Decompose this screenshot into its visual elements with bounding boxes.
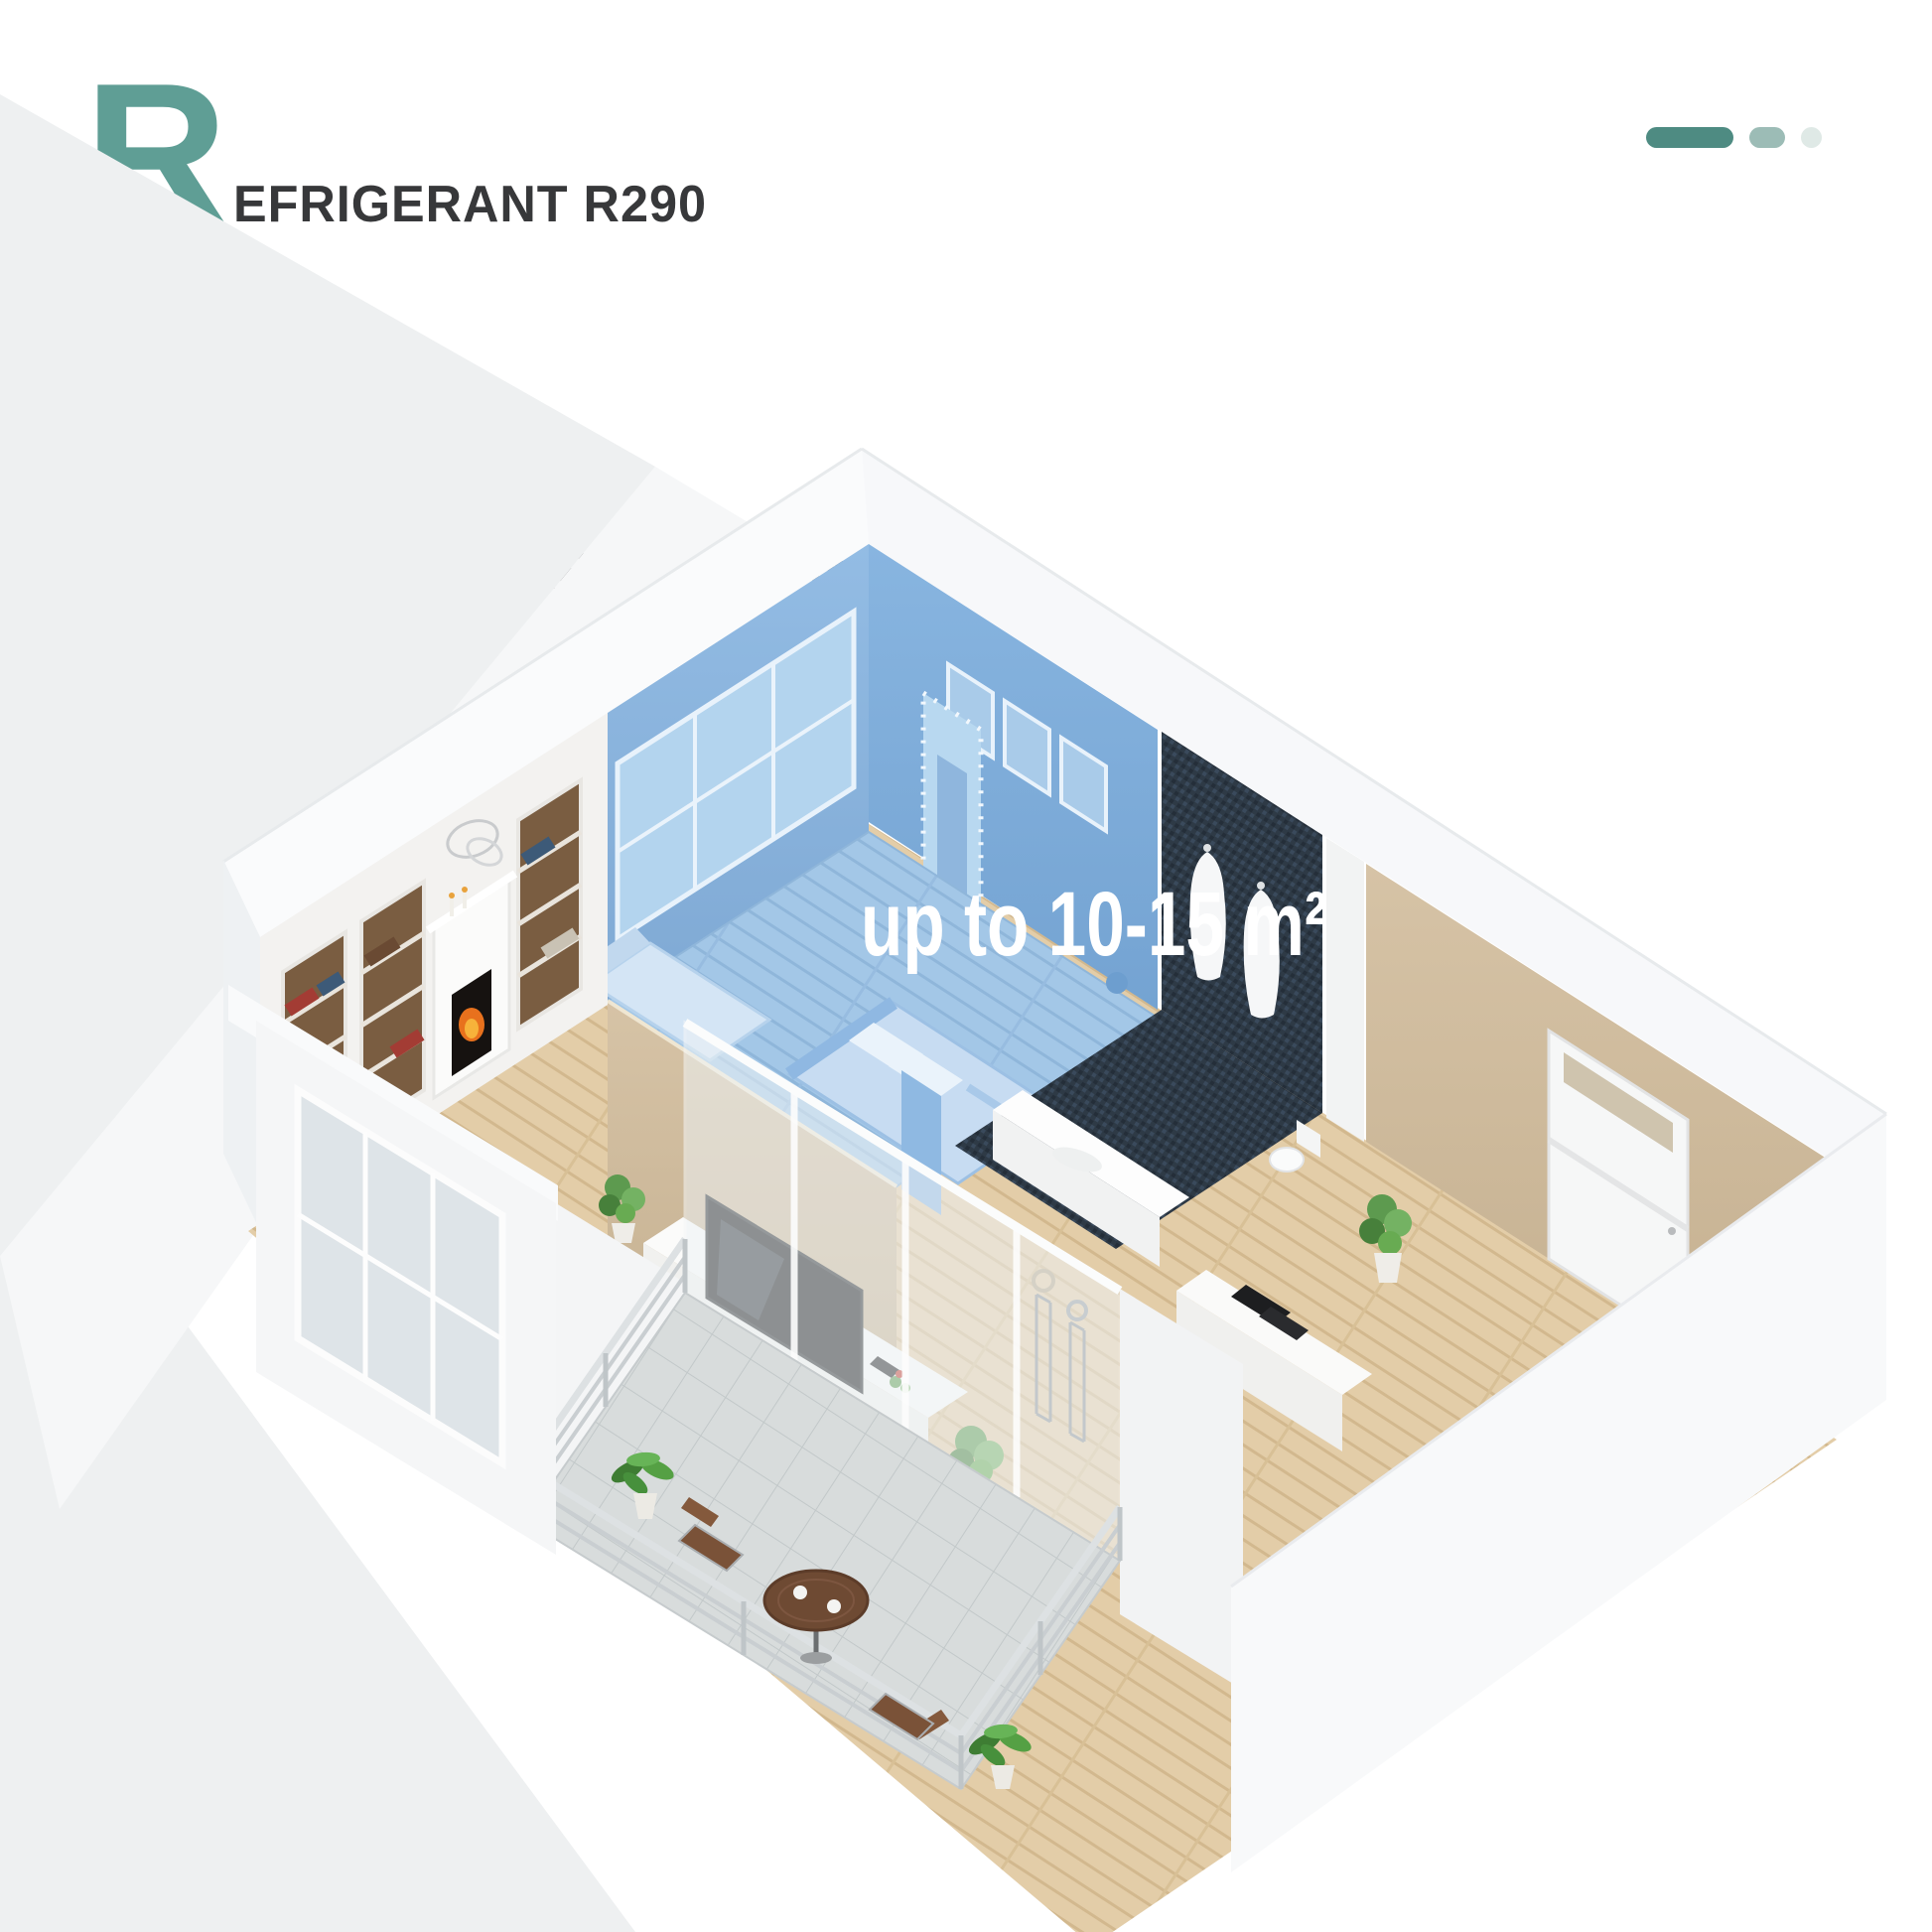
- room-area-overlay-label: up to 10-15 m²: [861, 874, 1327, 975]
- bedside-lamp-icon: [1106, 972, 1128, 994]
- floorplan-illustration: up to 10-15 m²: [0, 0, 1932, 1932]
- infographic-canvas: R EFRIGERANT R290 7 000BTU F ITS ROOM AR…: [0, 0, 1932, 1932]
